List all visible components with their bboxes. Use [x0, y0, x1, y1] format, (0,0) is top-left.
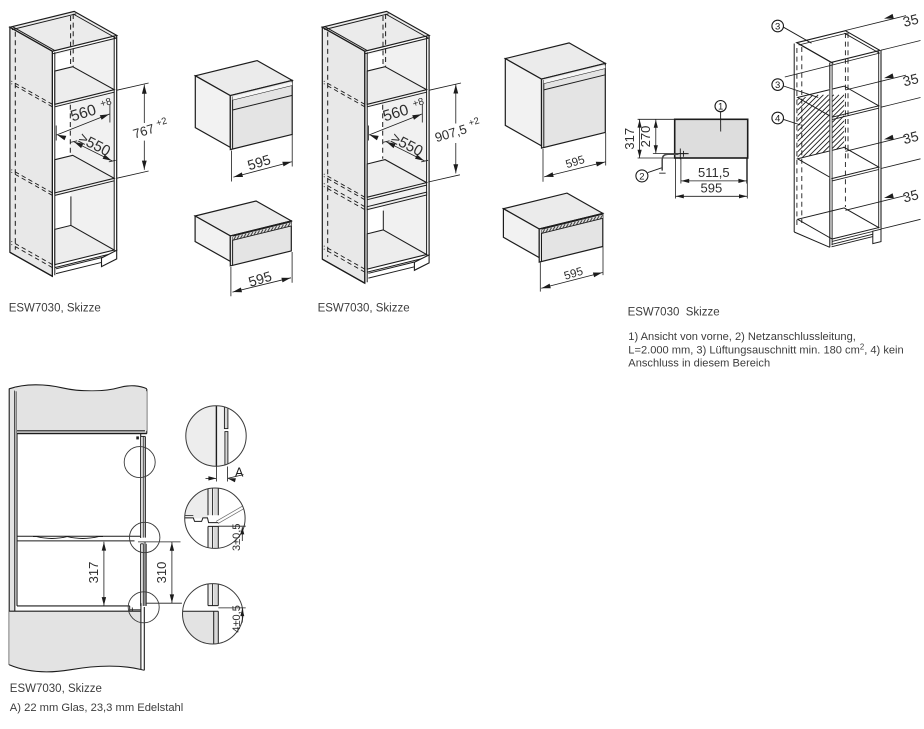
svg-text:3±0,5: 3±0,5	[231, 524, 243, 551]
svg-text:310: 310	[154, 562, 169, 584]
svg-text:1: 1	[718, 102, 723, 113]
svg-text:317: 317	[86, 562, 101, 584]
svg-text:317: 317	[622, 128, 637, 150]
svg-text:511,5: 511,5	[698, 165, 730, 180]
svg-text:3: 3	[775, 80, 780, 91]
svg-text:ESW7030, Skizze: ESW7030, Skizze	[318, 302, 410, 314]
svg-text:4: 4	[775, 114, 780, 125]
svg-text:595: 595	[701, 181, 723, 196]
svg-text:4±0,5: 4±0,5	[231, 605, 243, 632]
svg-text:270: 270	[638, 126, 653, 148]
svg-text:1) Ansicht von vorne, 2) Netza: 1) Ansicht von vorne, 2) Netzanschlussle…	[628, 331, 856, 343]
svg-text:A: A	[235, 465, 244, 479]
svg-text:A) 22 mm Glas, 23,3 mm Edelsta: A) 22 mm Glas, 23,3 mm Edelstahl	[10, 702, 183, 714]
svg-text:ESW7030, Skizze: ESW7030, Skizze	[10, 683, 102, 695]
svg-text:Anschluss in diesem Bereich: Anschluss in diesem Bereich	[628, 358, 770, 370]
svg-text:ESW7030 Skizze: ESW7030 Skizze	[628, 306, 720, 318]
svg-text:3: 3	[775, 22, 780, 33]
svg-text:ESW7030, Skizze: ESW7030, Skizze	[9, 302, 101, 314]
svg-text:2: 2	[639, 172, 644, 183]
